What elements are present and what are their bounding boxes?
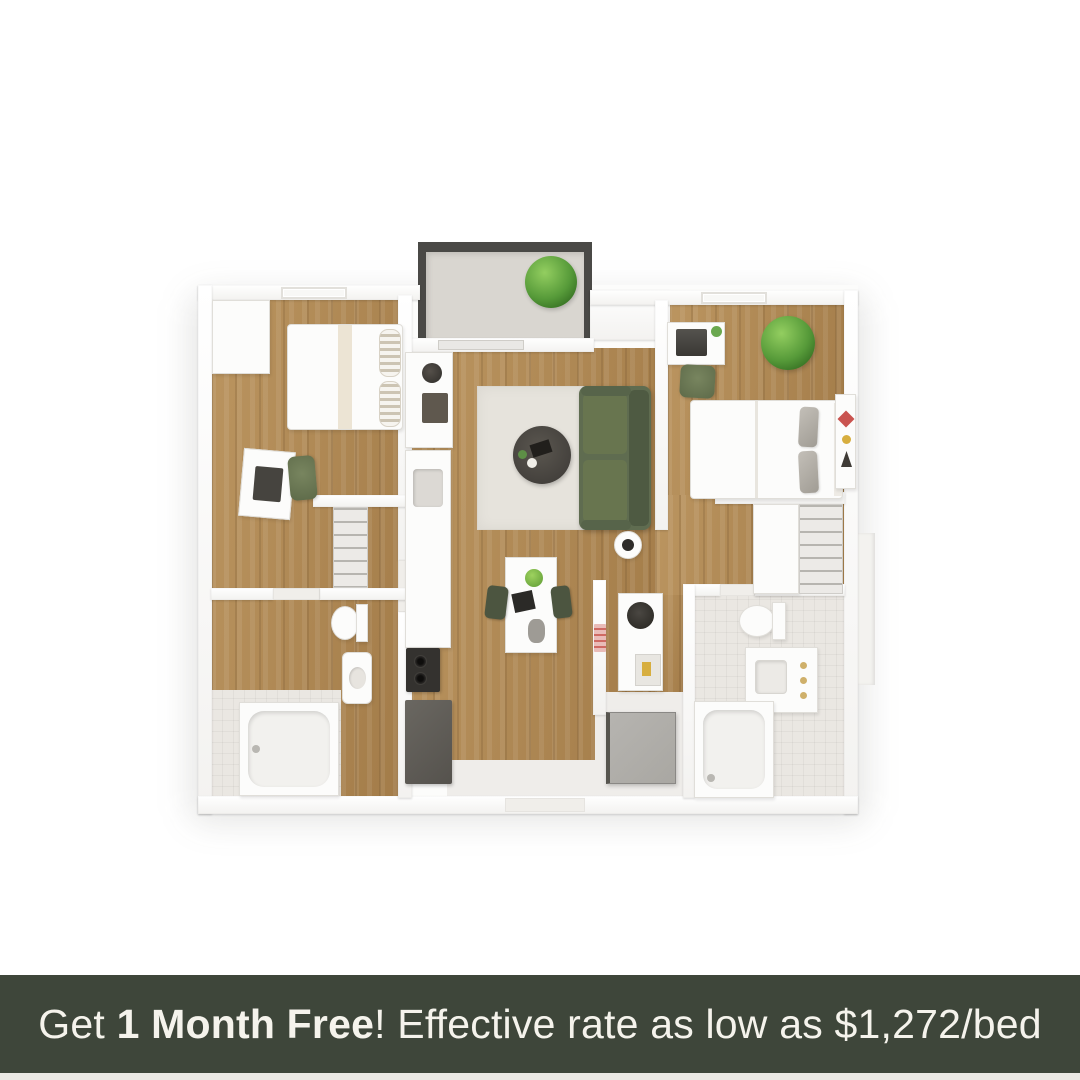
printer-icon xyxy=(676,329,707,356)
bed-right-pillow xyxy=(798,451,819,494)
faucet-light-icon xyxy=(800,692,807,699)
sofa xyxy=(579,386,651,530)
decor-black-icon xyxy=(511,590,535,613)
refrigerator xyxy=(405,700,452,784)
laptop-icon xyxy=(253,466,284,502)
wall-bump-right xyxy=(855,533,875,685)
table-plant-icon xyxy=(518,450,527,459)
yellow-item-icon xyxy=(642,662,651,676)
wall-left-bath-a xyxy=(211,588,273,600)
faucet-light-icon xyxy=(800,662,807,669)
promo-text-highlight: 1 Month Free xyxy=(117,1001,375,1047)
floor-entry xyxy=(447,760,595,798)
door-right-bath xyxy=(720,584,755,596)
book-icon xyxy=(529,439,552,458)
banner-bottom-strip xyxy=(0,1073,1080,1080)
vase-flowers-icon xyxy=(528,619,545,643)
promo-banner-text: Get 1 Month Free! Effective rate as low … xyxy=(38,1004,1041,1045)
promo-text-prefix: Get xyxy=(38,1001,116,1047)
desk-nook xyxy=(618,593,663,691)
toilet-right-bowl xyxy=(739,605,775,637)
bed-right xyxy=(690,400,843,499)
washer-dryer xyxy=(606,712,676,784)
artwork-leaning xyxy=(422,393,448,423)
toilet-left-bowl xyxy=(331,606,359,640)
sink-right xyxy=(755,660,787,694)
door-left-bath xyxy=(273,588,320,600)
cup-icon xyxy=(527,458,537,468)
toilet-right-tank xyxy=(772,602,786,640)
sink-left-bathroom xyxy=(342,652,372,704)
dining-table xyxy=(505,557,557,653)
wall-left xyxy=(198,285,212,814)
window-right-bedroom xyxy=(701,292,767,304)
toilet-left-tank xyxy=(356,604,368,642)
kitchen-sink xyxy=(413,469,443,507)
desk-left-bedroom xyxy=(238,448,296,520)
wall-right xyxy=(844,290,858,814)
chair-right-desk xyxy=(679,364,716,399)
bed-left-blanket xyxy=(338,325,352,429)
balcony-rail-top xyxy=(418,242,592,252)
kitchen-counter xyxy=(405,450,451,648)
coffee-table xyxy=(513,426,571,484)
cooktop xyxy=(406,648,440,692)
bed-left-pillow xyxy=(379,329,401,377)
bed-left xyxy=(287,324,403,430)
burner-icon xyxy=(414,655,427,668)
window-left-bedroom xyxy=(281,287,347,299)
wall-left-bath-b xyxy=(320,588,412,600)
promo-banner: Get 1 Month Free! Effective rate as low … xyxy=(0,975,1080,1073)
sofa-arm xyxy=(581,520,631,530)
bathtub-left xyxy=(239,702,339,796)
green-bowl-icon xyxy=(525,569,543,587)
plant-right-bedroom xyxy=(761,316,815,370)
wall-poster-pink xyxy=(594,624,606,652)
bathtub-left-basin xyxy=(248,711,330,787)
art-red-diamond xyxy=(838,411,855,428)
sofa-cushion xyxy=(583,460,627,522)
art-yellow-dot xyxy=(842,435,851,444)
sink-basin xyxy=(349,667,366,689)
floor-plan-render xyxy=(195,240,885,825)
desk-plant-icon xyxy=(711,326,722,337)
faucet-icon xyxy=(252,745,260,753)
sofa-back xyxy=(629,390,649,526)
balcony-door xyxy=(438,340,524,350)
mini-fridge xyxy=(635,654,661,686)
dining-chair xyxy=(484,585,509,620)
wall-art-right-bedroom xyxy=(835,394,856,489)
bed-left-pillow xyxy=(379,381,401,427)
promo-flyer: Get 1 Month Free! Effective rate as low … xyxy=(0,0,1080,1080)
faucet-icon xyxy=(707,774,715,782)
art-dark-triangle xyxy=(841,451,852,467)
balcony-plant xyxy=(525,256,577,308)
closet-wire-right xyxy=(799,504,843,594)
tv-console xyxy=(405,352,453,448)
entry-door xyxy=(505,798,585,812)
wall-left-closet xyxy=(313,495,412,507)
wardrobe-right-closet xyxy=(753,504,799,594)
office-chair-icon xyxy=(627,602,654,629)
chair-left-desk xyxy=(287,455,318,501)
bowl-icon xyxy=(622,539,634,551)
sofa-cushion xyxy=(583,394,627,454)
closet-wire-left xyxy=(333,507,368,588)
promo-text-suffix: ! Effective rate as low as $1,272/bed xyxy=(374,1001,1042,1047)
bed-right-pillow xyxy=(798,407,819,448)
sofa-arm xyxy=(581,386,631,396)
wardrobe-left-bedroom xyxy=(212,300,270,374)
bed-right-fold xyxy=(755,401,758,498)
bathtub-right xyxy=(694,701,774,798)
side-table xyxy=(614,531,642,559)
dining-chair xyxy=(550,585,573,619)
desk-right-bedroom xyxy=(667,322,725,365)
faucet-light-icon xyxy=(800,677,807,684)
burner-icon xyxy=(414,672,427,685)
tv-icon xyxy=(422,363,442,383)
